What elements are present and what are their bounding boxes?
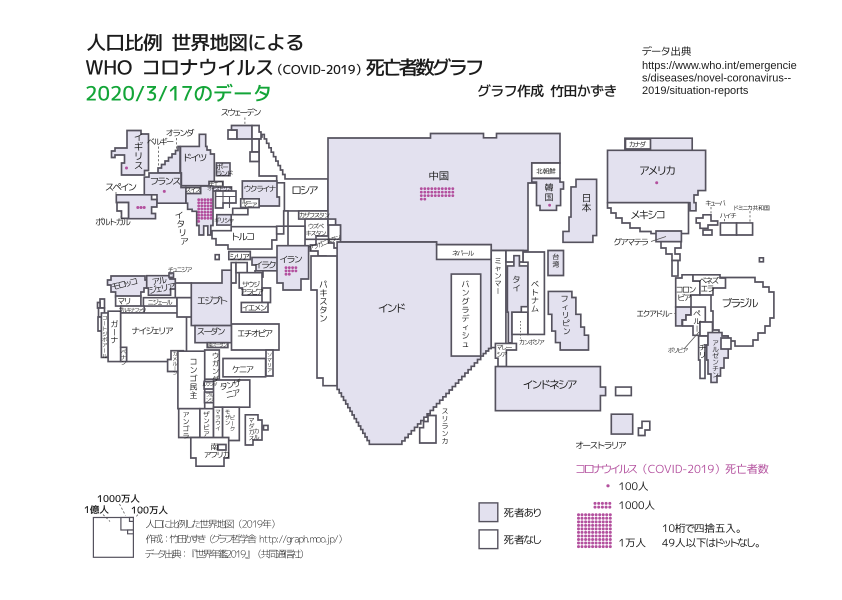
svg-text:s/diseases/novel-coronavirus--: s/diseases/novel-coronavirus-- — [642, 73, 792, 85]
svg-text:https://www.who.int/emergencie: https://www.who.int/emergencie — [642, 60, 797, 72]
svg-text:2019/situation-reports: 2019/situation-reports — [642, 85, 749, 97]
